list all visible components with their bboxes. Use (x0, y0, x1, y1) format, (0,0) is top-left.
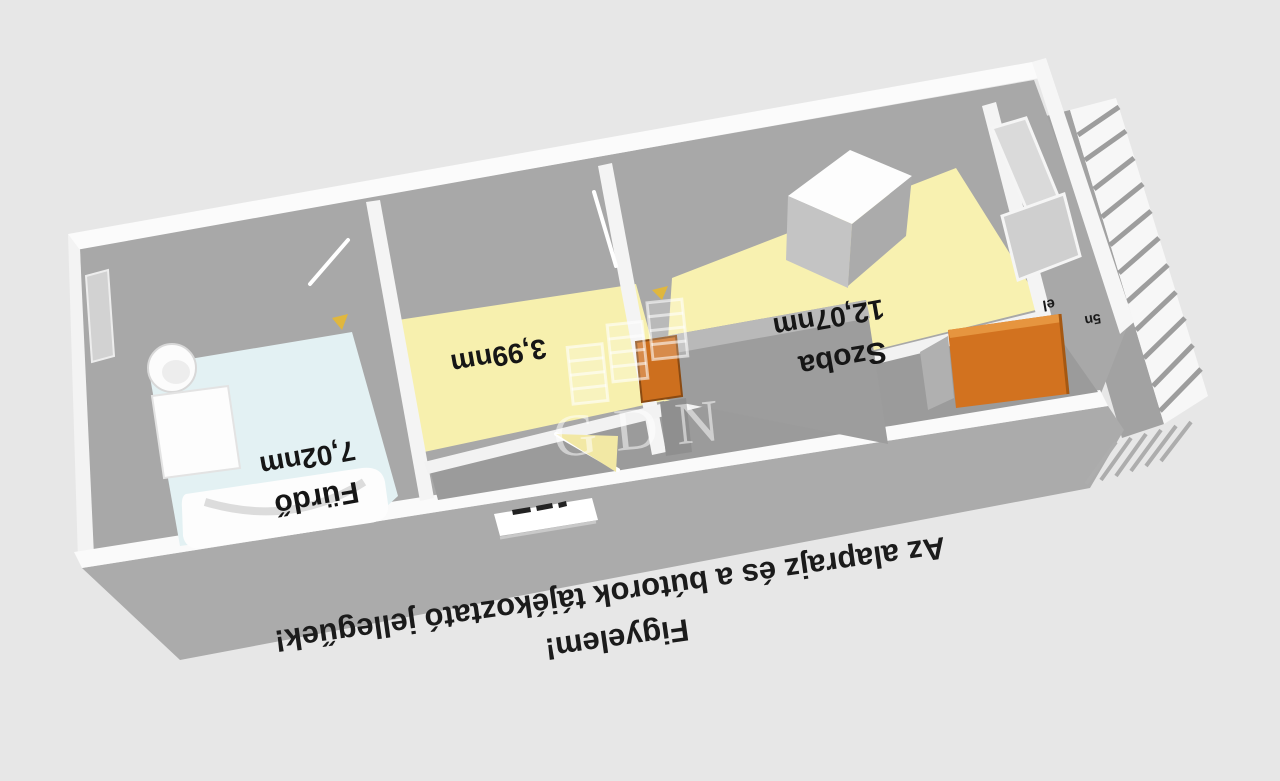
stair-mark-2: 5n (1083, 311, 1102, 330)
toilet-bowl (162, 360, 190, 384)
bathroom-window (86, 270, 114, 362)
floorplan-render: 7,02nm Fürdő 3,99nm 12,07nm Szoba el 5n … (0, 0, 1280, 781)
washbasin-cabinet (152, 386, 240, 478)
